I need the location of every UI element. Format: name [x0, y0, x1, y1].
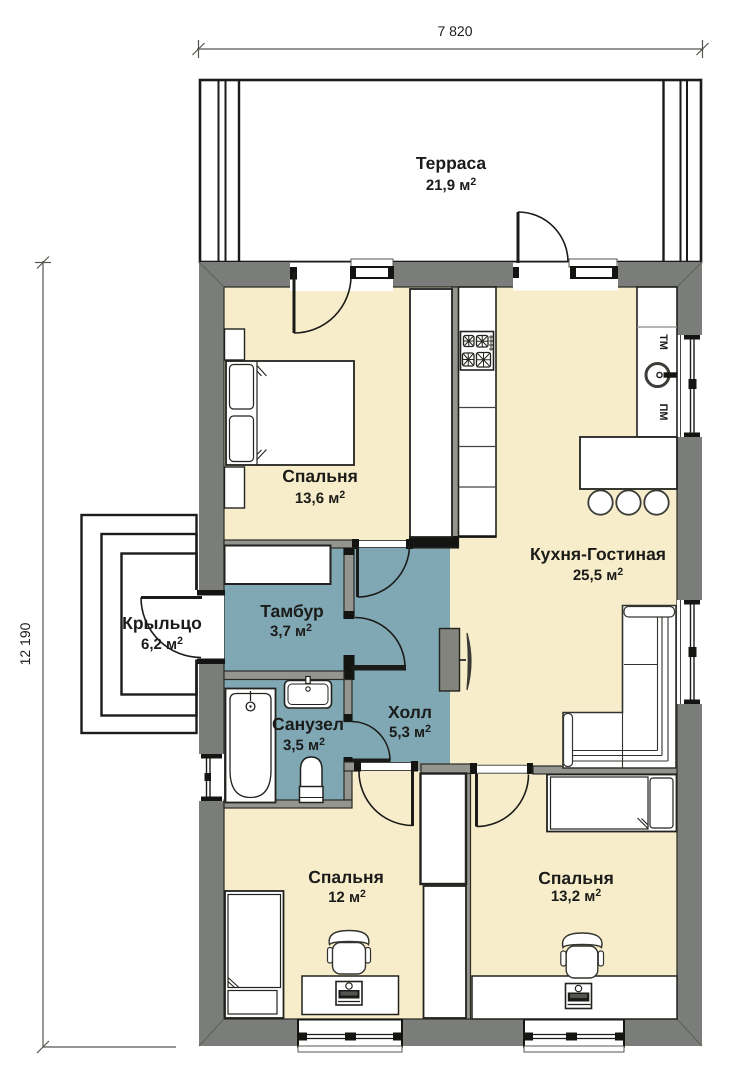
svg-text:5,3 м2: 5,3 м2	[389, 723, 431, 741]
svg-text:13,2 м2: 13,2 м2	[551, 887, 601, 905]
svg-text:ПМ: ПМ	[657, 403, 669, 420]
svg-text:7 820: 7 820	[437, 23, 472, 39]
svg-text:Санузел: Санузел	[272, 714, 344, 734]
svg-text:Крыльцо: Крыльцо	[122, 613, 202, 633]
svg-text:6,2 м2: 6,2 м2	[141, 635, 183, 653]
svg-text:Терраса: Терраса	[416, 153, 487, 173]
svg-text:3,7 м2: 3,7 м2	[270, 622, 312, 640]
svg-text:Спальня: Спальня	[308, 867, 384, 887]
svg-text:Тамбур: Тамбур	[260, 601, 323, 621]
svg-text:3,5 м2: 3,5 м2	[283, 736, 325, 754]
svg-text:Кухня-Гостиная: Кухня-Гостиная	[530, 544, 666, 564]
svg-text:21,9 м2: 21,9 м2	[426, 176, 476, 194]
svg-text:12 190: 12 190	[17, 622, 33, 665]
svg-text:Спальня: Спальня	[282, 466, 358, 486]
svg-text:ТМ: ТМ	[657, 334, 669, 350]
svg-text:Холл: Холл	[388, 702, 432, 722]
svg-text:Спальня: Спальня	[538, 868, 614, 888]
svg-text:25,5 м2: 25,5 м2	[573, 566, 623, 584]
svg-text:13,6 м2: 13,6 м2	[295, 489, 345, 507]
